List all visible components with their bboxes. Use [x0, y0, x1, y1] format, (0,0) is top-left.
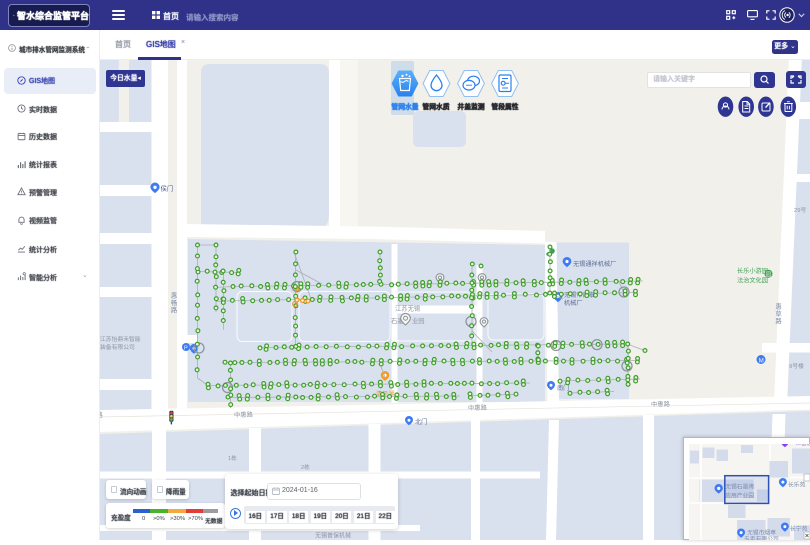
svg-text:长乐苑: 长乐苑 — [788, 480, 806, 488]
svg-text:北门: 北门 — [415, 418, 427, 426]
svg-text:法治文化园: 法治文化园 — [737, 277, 768, 285]
svg-text:无锡石墨烯: 无锡石墨烯 — [725, 482, 754, 490]
svg-text:P: P — [184, 346, 188, 352]
svg-text:中惠路: 中惠路 — [651, 399, 671, 408]
svg-text:无锡市烟草: 无锡市烟草 — [747, 528, 776, 536]
svg-text:一恒富达: 一恒富达 — [790, 444, 810, 447]
svg-text:无锡通祥机械厂: 无锡通祥机械厂 — [573, 260, 616, 268]
svg-text:惠草路: 惠草路 — [774, 302, 781, 326]
svg-text:江苏无锡: 江苏无锡 — [395, 304, 420, 313]
svg-text:9号楼: 9号楼 — [789, 362, 804, 370]
svg-text:长乐小游园: 长乐小游园 — [737, 267, 768, 275]
svg-text:中惠路: 中惠路 — [234, 410, 254, 419]
svg-text:应用产业园: 应用产业园 — [725, 491, 754, 499]
svg-text:园: 园 — [766, 272, 771, 278]
svg-text:中惠路: 中惠路 — [468, 403, 488, 412]
svg-text:29号: 29号 — [794, 207, 806, 214]
svg-text:长宁苑: 长宁苑 — [790, 524, 808, 532]
svg-text:业园: 业园 — [412, 316, 425, 325]
svg-text:M: M — [759, 358, 764, 364]
svg-text:1栋: 1栋 — [228, 454, 237, 462]
svg-text:无锡普保机械: 无锡普保机械 — [315, 532, 351, 540]
svg-text:装备有限公司: 装备有限公司 — [100, 343, 135, 351]
svg-text:惠畅路: 惠畅路 — [170, 291, 177, 315]
svg-text:机械厂: 机械厂 — [564, 299, 583, 307]
svg-text:侯门: 侯门 — [161, 184, 174, 193]
svg-text:2栋: 2栋 — [301, 463, 310, 471]
svg-text:江苏怡鼎禾智能: 江苏怡鼎禾智能 — [100, 335, 141, 343]
